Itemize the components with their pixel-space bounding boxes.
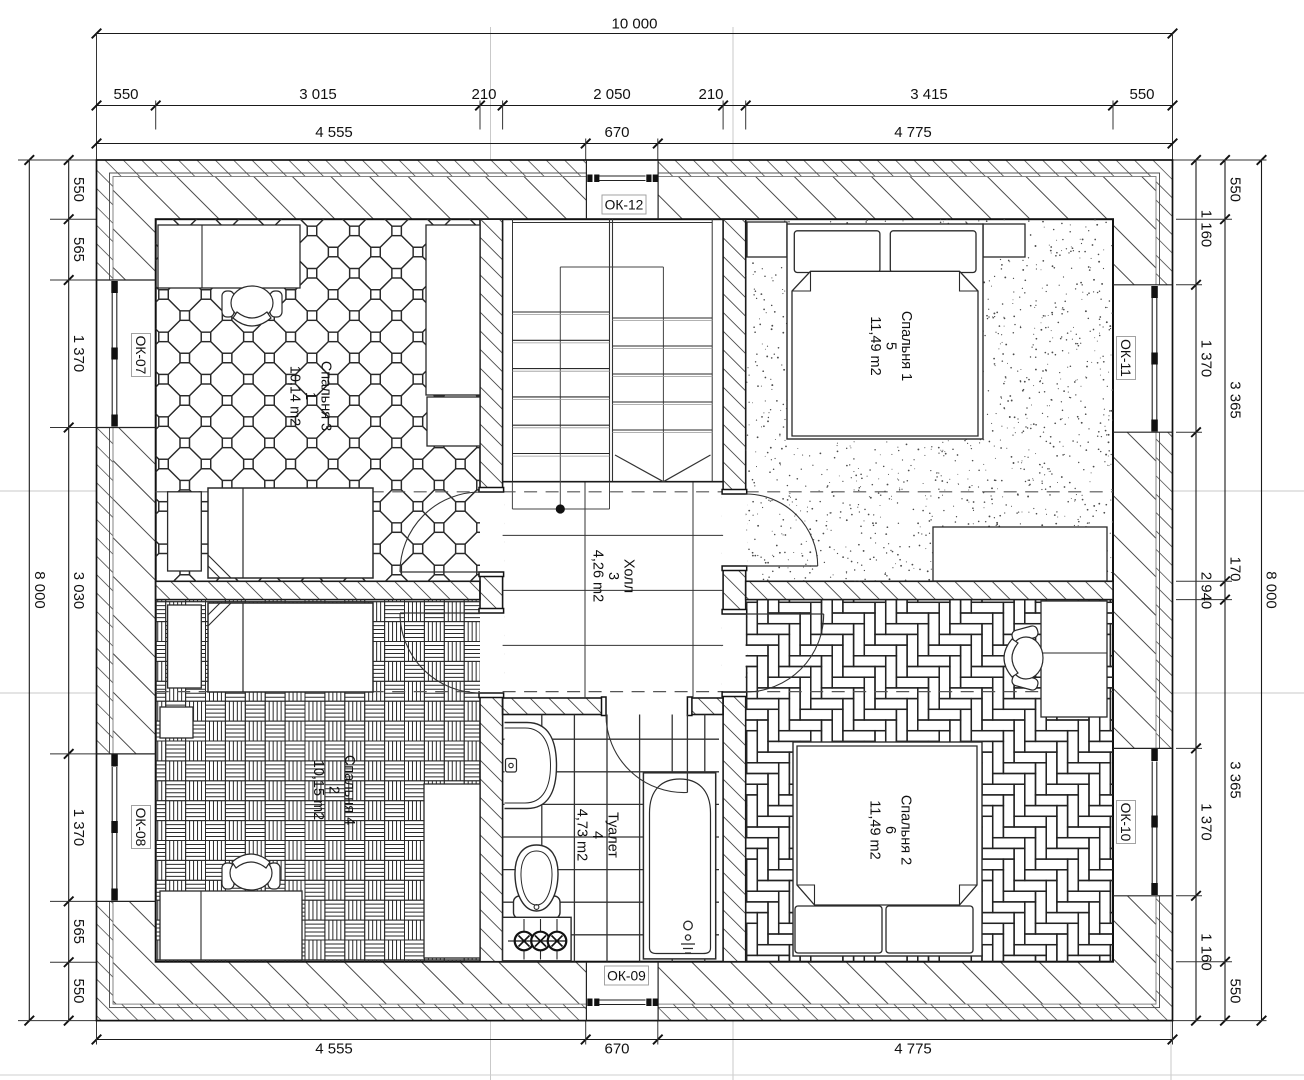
svg-text:550: 550: [70, 978, 87, 1003]
svg-text:1 370: 1 370: [1198, 803, 1215, 841]
svg-text:Спальня 1: Спальня 1: [898, 311, 914, 381]
svg-text:670: 670: [604, 124, 629, 141]
svg-text:550: 550: [113, 86, 138, 103]
svg-text:11,49 m2: 11,49 m2: [867, 316, 883, 375]
svg-text:11,49 m2: 11,49 m2: [866, 800, 882, 859]
svg-text:10,14 m2: 10,14 m2: [286, 366, 302, 426]
svg-text:8 000: 8 000: [1263, 571, 1280, 609]
svg-text:1 370: 1 370: [70, 335, 87, 373]
svg-text:4,73 m2: 4,73 m2: [573, 809, 589, 861]
svg-text:4 775: 4 775: [894, 124, 932, 141]
svg-text:1 160: 1 160: [1198, 933, 1215, 971]
svg-text:4,26 m2: 4,26 m2: [589, 550, 605, 602]
svg-text:565: 565: [70, 237, 87, 262]
svg-text:3 365: 3 365: [1227, 381, 1244, 419]
svg-text:550: 550: [70, 177, 87, 202]
svg-text:2: 2: [325, 786, 341, 794]
svg-text:1 370: 1 370: [70, 809, 87, 847]
svg-text:Спальня 2: Спальня 2: [897, 795, 913, 865]
svg-text:550: 550: [1129, 86, 1154, 103]
svg-text:ОК-07: ОК-07: [133, 336, 148, 375]
svg-text:170: 170: [1227, 556, 1244, 581]
svg-text:3 015: 3 015: [299, 86, 337, 103]
svg-text:2 050: 2 050: [593, 86, 631, 103]
svg-text:6: 6: [882, 826, 898, 834]
svg-text:10,15 m2: 10,15 m2: [310, 760, 326, 820]
svg-text:8 000: 8 000: [31, 571, 48, 609]
svg-text:4 775: 4 775: [894, 1041, 932, 1058]
svg-text:4 555: 4 555: [315, 1041, 353, 1058]
svg-text:ОК-09: ОК-09: [607, 968, 646, 983]
svg-text:Холл: Холл: [620, 559, 636, 593]
svg-text:670: 670: [604, 1041, 629, 1058]
svg-text:ОК-12: ОК-12: [605, 197, 644, 212]
svg-text:3 365: 3 365: [1227, 761, 1244, 799]
svg-text:ОК-10: ОК-10: [1118, 803, 1133, 842]
svg-text:ОК-11: ОК-11: [1118, 339, 1133, 377]
svg-text:4: 4: [589, 831, 605, 839]
svg-text:1 370: 1 370: [1198, 340, 1215, 378]
svg-text:5: 5: [882, 342, 898, 350]
svg-text:2 940: 2 940: [1198, 572, 1215, 610]
svg-text:210: 210: [698, 86, 723, 103]
svg-text:3 415: 3 415: [910, 86, 948, 103]
svg-text:1: 1: [302, 392, 318, 400]
svg-text:1 160: 1 160: [1198, 210, 1215, 248]
svg-text:3 030: 3 030: [70, 572, 87, 610]
svg-text:4 555: 4 555: [315, 124, 353, 141]
svg-text:Спальня 4: Спальня 4: [341, 755, 357, 825]
svg-text:550: 550: [1227, 978, 1244, 1003]
svg-text:565: 565: [70, 919, 87, 944]
svg-text:210: 210: [471, 86, 496, 103]
svg-text:Туалет: Туалет: [604, 812, 620, 858]
svg-text:10 000: 10 000: [612, 16, 658, 33]
svg-text:3: 3: [605, 572, 621, 580]
svg-text:550: 550: [1227, 177, 1244, 202]
svg-text:ОК-08: ОК-08: [133, 808, 148, 847]
svg-text:Спальня 3: Спальня 3: [317, 361, 333, 431]
